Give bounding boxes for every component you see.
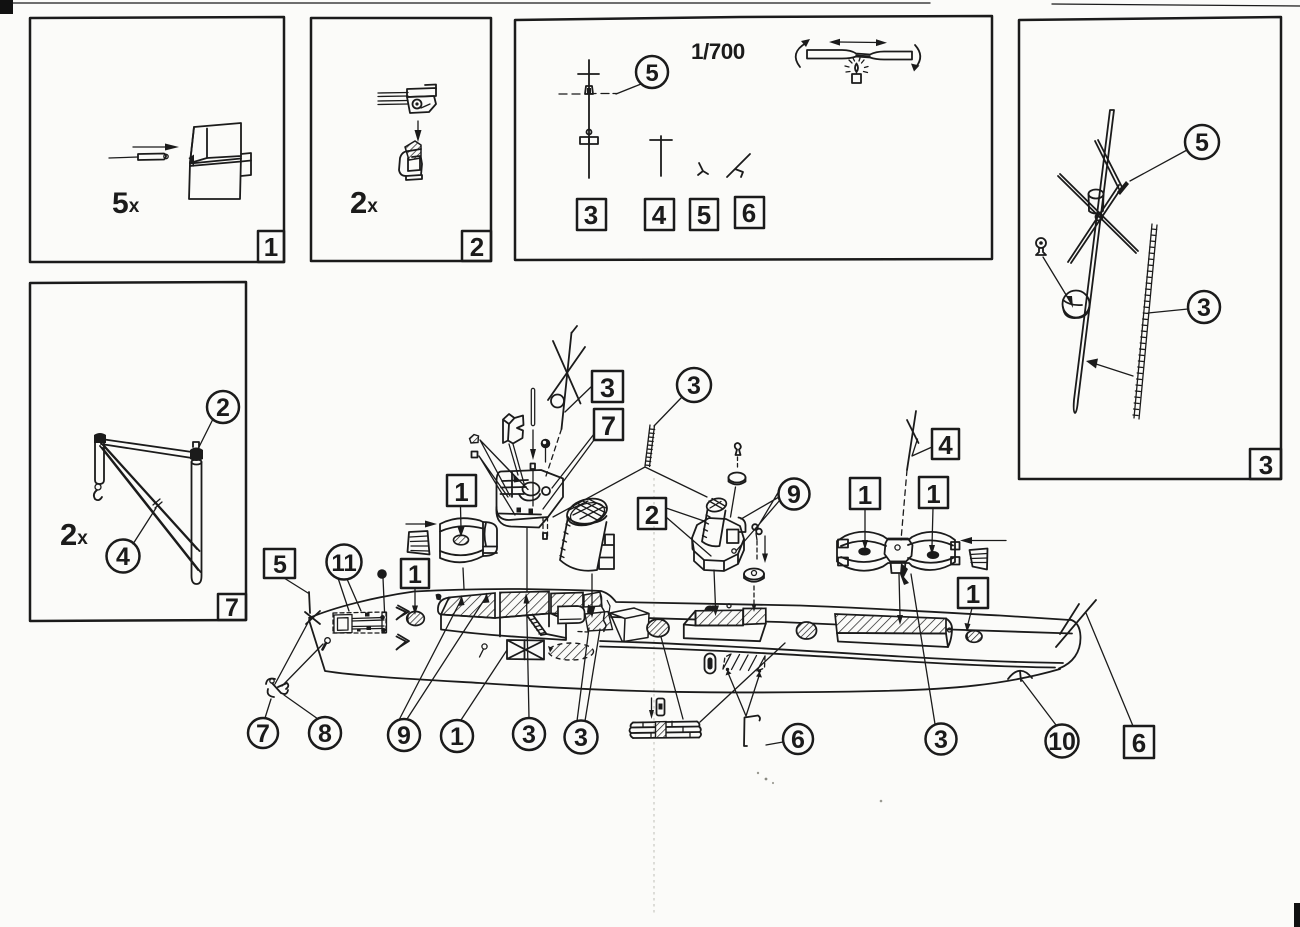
svg-text:2: 2 (645, 500, 659, 530)
svg-text:5: 5 (1195, 129, 1209, 157)
svg-text:3: 3 (934, 726, 948, 754)
svg-text:10: 10 (1048, 728, 1076, 756)
svg-text:3: 3 (574, 724, 588, 752)
svg-text:8: 8 (318, 720, 332, 748)
svg-text:3: 3 (584, 200, 598, 230)
svg-text:9: 9 (397, 722, 411, 750)
svg-text:2: 2 (470, 232, 484, 262)
svg-text:3: 3 (600, 373, 615, 403)
svg-text:7: 7 (225, 594, 239, 622)
svg-text:4: 4 (116, 543, 130, 571)
svg-text:4: 4 (938, 430, 953, 460)
svg-text:5: 5 (273, 551, 287, 579)
svg-text:1: 1 (926, 479, 940, 509)
svg-text:1: 1 (966, 579, 980, 609)
svg-text:1: 1 (450, 723, 464, 751)
svg-text:9: 9 (787, 481, 801, 509)
svg-text:1: 1 (264, 232, 278, 262)
svg-text:11: 11 (331, 550, 356, 577)
svg-text:7: 7 (601, 411, 616, 441)
svg-text:6: 6 (791, 726, 805, 754)
svg-text:1: 1 (858, 480, 872, 510)
svg-text:3: 3 (687, 372, 701, 400)
svg-text:3: 3 (1259, 450, 1273, 480)
svg-text:6: 6 (742, 198, 756, 228)
svg-text:5: 5 (645, 60, 658, 87)
svg-text:1: 1 (454, 477, 468, 507)
svg-text:1/700: 1/700 (691, 39, 745, 64)
svg-text:3: 3 (1197, 294, 1211, 322)
svg-text:5: 5 (697, 200, 711, 230)
svg-text:6: 6 (1132, 728, 1146, 758)
svg-text:3: 3 (522, 721, 536, 749)
svg-text:4: 4 (652, 200, 667, 230)
svg-text:1: 1 (408, 561, 422, 589)
svg-text:2: 2 (216, 394, 230, 422)
svg-text:7: 7 (256, 720, 270, 748)
